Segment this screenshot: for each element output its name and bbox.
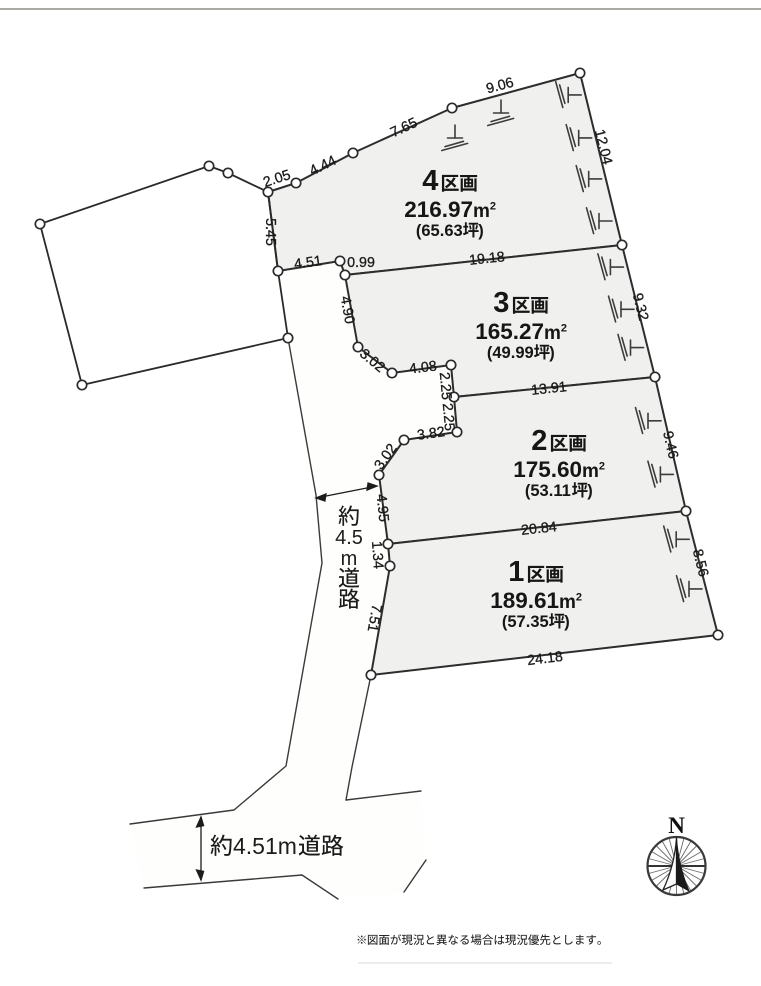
svg-text:4.08: 4.08 bbox=[408, 358, 438, 377]
svg-text:24.18: 24.18 bbox=[526, 649, 564, 669]
svg-text:1.34: 1.34 bbox=[368, 541, 386, 570]
svg-text:): ) bbox=[564, 613, 570, 631]
svg-text:(65.63: (65.63 bbox=[416, 222, 463, 240]
svg-text:3: 3 bbox=[493, 287, 509, 319]
svg-text:2.25: 2.25 bbox=[436, 371, 454, 400]
svg-text:N: N bbox=[668, 813, 685, 838]
svg-text:(57.35: (57.35 bbox=[502, 613, 549, 631]
svg-text:4.51m: 4.51m bbox=[233, 833, 297, 859]
svg-text:175.60m2: 175.60m2 bbox=[513, 457, 605, 482]
svg-text:5.45: 5.45 bbox=[262, 218, 278, 246]
svg-text:2: 2 bbox=[531, 425, 547, 457]
svg-text:): ) bbox=[587, 482, 593, 500]
svg-text:(53.11: (53.11 bbox=[525, 482, 571, 500]
svg-text:): ) bbox=[549, 344, 555, 362]
svg-text:1: 1 bbox=[508, 556, 524, 588]
svg-text:189.61m2: 189.61m2 bbox=[490, 588, 582, 613]
svg-text:4.5: 4.5 bbox=[335, 527, 363, 549]
svg-text:216.97m2: 216.97m2 bbox=[404, 197, 496, 222]
svg-text:4.95: 4.95 bbox=[373, 493, 392, 522]
svg-text:165.27m2: 165.27m2 bbox=[475, 319, 567, 344]
svg-text:4: 4 bbox=[422, 165, 438, 197]
svg-text:(49.99: (49.99 bbox=[487, 344, 534, 362]
svg-text:0.99: 0.99 bbox=[347, 255, 375, 271]
svg-text:m: m bbox=[341, 548, 358, 570]
svg-text:): ) bbox=[478, 222, 484, 240]
